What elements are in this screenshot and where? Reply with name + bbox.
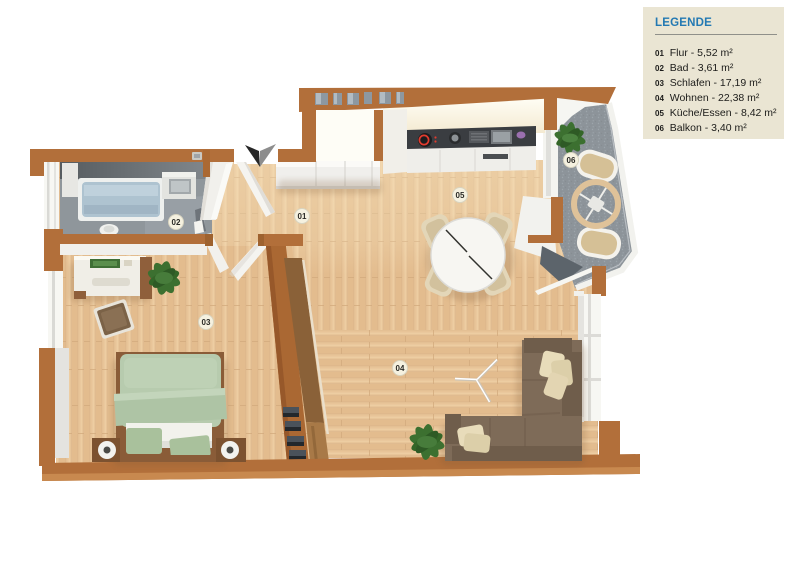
svg-text:05: 05 xyxy=(456,191,465,200)
svg-text:02: 02 xyxy=(172,218,181,227)
svg-text:06: 06 xyxy=(567,156,576,165)
svg-text:03: 03 xyxy=(202,318,211,327)
svg-text:04: 04 xyxy=(396,364,405,373)
svg-text:01: 01 xyxy=(298,212,307,221)
